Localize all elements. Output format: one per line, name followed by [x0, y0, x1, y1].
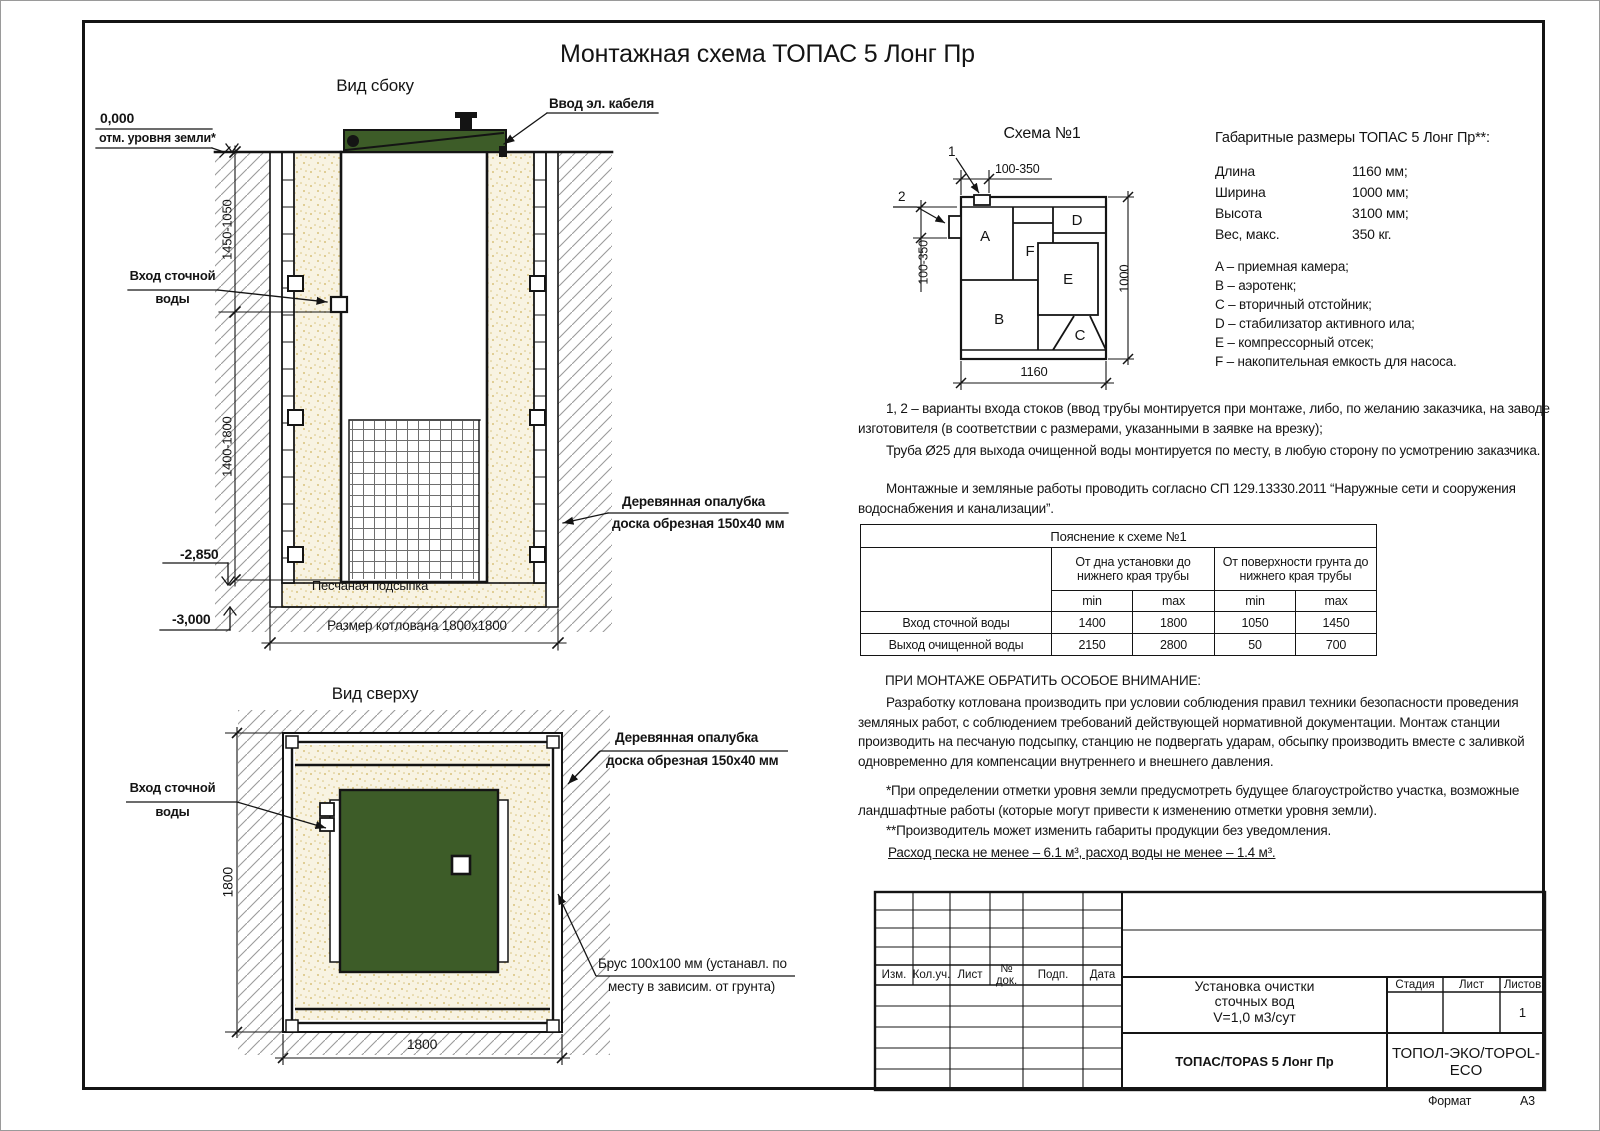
- spec-label-1: Ширина: [1215, 184, 1266, 201]
- inlet-label-top-1: Вход сточной: [125, 780, 220, 795]
- ground-level-label: отм. уровня земли*: [99, 131, 216, 146]
- legend-item-a: A – приемная камера;: [1215, 259, 1349, 275]
- footnote-2: **Производитель может изменить габариты …: [858, 821, 1550, 841]
- row-inlet-v4: 1450: [1296, 612, 1377, 634]
- compartment-d: D: [1067, 212, 1087, 230]
- row-inlet-v1: 1400: [1052, 612, 1133, 634]
- schema-dim-right: 1000: [1116, 239, 1131, 319]
- model-name: ТОПАС/TOPAS 5 Лонг Пр: [1122, 1033, 1387, 1090]
- formwork-label-top-2: доска обрезная 150x40 мм: [606, 753, 778, 769]
- compartment-a: A: [975, 228, 995, 246]
- formwork-label-side-1: Деревянная опалубка: [622, 494, 765, 510]
- legend-item-b: B – аэротенк;: [1215, 278, 1296, 294]
- row-outlet-v2: 2800: [1133, 634, 1215, 656]
- side-view-title: Вид сбоку: [300, 76, 450, 96]
- schema-dim-top: 100-350: [995, 162, 1039, 177]
- inlet-port: [331, 297, 347, 312]
- rev-header-izm: Изм.: [875, 965, 913, 985]
- tank-grid-section: [350, 421, 479, 579]
- attention-title: ПРИ МОНТАЖЕ ОБРАТИТЬ ОСОБОЕ ВНИМАНИЕ:: [885, 673, 1201, 689]
- sand-backfill-left: [295, 153, 341, 583]
- dim-upper-label: 1450-1050: [219, 180, 234, 280]
- rev-header-data: Дата: [1083, 965, 1122, 985]
- schema-dim-bottom: 1160: [998, 364, 1070, 379]
- compartment-b: B: [989, 311, 1009, 329]
- zero-elevation-label: 0,000: [100, 110, 134, 127]
- schema-port-2: [949, 216, 961, 238]
- inlet-port-top: [320, 803, 334, 816]
- sheets-header: Листов: [1500, 977, 1545, 992]
- formwork-label-side-2: доска обрезная 150x40 мм: [612, 516, 784, 532]
- row-outlet-v4: 700: [1296, 634, 1377, 656]
- note-inlet-variants: 1, 2 – варианты входа стоков (ввод трубы…: [858, 399, 1550, 439]
- lid-vent-hole: [347, 135, 359, 147]
- legend-item-e: E – компрессорный отсек;: [1215, 335, 1374, 351]
- footnote-1: *При определении отметки уровня земли пр…: [858, 781, 1550, 820]
- inlet-label-top-2: воды: [125, 804, 220, 819]
- beam-label-1: Брус 100x100 мм (устанавл. по: [598, 956, 787, 972]
- top-dim-left: 1800: [220, 832, 237, 932]
- inlet-label-side-2: воды: [125, 291, 220, 306]
- doc-title-line-2: сточных вод: [1122, 993, 1387, 1009]
- elevation-3000-label: -3,000: [172, 611, 211, 628]
- spec-label-0: Длина: [1215, 163, 1255, 180]
- table-row: Выход очищенной воды 2150 2800 50 700: [861, 634, 1377, 656]
- legend-item-d: D – стабилизатор активного ила;: [1215, 316, 1415, 332]
- row-outlet-v3: 50: [1215, 634, 1296, 656]
- consumption-note: Расход песка не менее – 6.1 м³, расход в…: [888, 845, 1275, 861]
- company-name: ТОПОЛ-ЭКО/TOPOL-ECO: [1387, 1033, 1545, 1090]
- rev-header-koluch: Кол.уч.: [913, 965, 950, 985]
- table-title: Пояснение к схеме №1: [861, 525, 1377, 548]
- top-dim-bottom: 1800: [322, 1036, 522, 1053]
- sheets-count: 1: [1500, 992, 1545, 1033]
- spec-value-2: 3100 мм;: [1352, 205, 1409, 222]
- schema-dim-left: 100-350: [917, 222, 932, 302]
- specs-title: Габаритные размеры ТОПАС 5 Лонг Пр**:: [1215, 130, 1490, 147]
- doc-title-line-3: V=1,0 м3/сут: [1122, 1009, 1387, 1025]
- table-row: Вход сточной воды 1400 1800 1050 1450: [861, 612, 1377, 634]
- table-group-2: От поверхности грунта до нижнего края тр…: [1215, 548, 1377, 591]
- side-view-drawing: [96, 112, 788, 650]
- legend-item-c: C – вторичный отстойник;: [1215, 297, 1372, 313]
- rev-header-dok: № док.: [990, 965, 1023, 985]
- sand-backfill-right: [488, 153, 534, 583]
- table-min-2: min: [1215, 591, 1296, 612]
- spec-label-3: Вес, макс.: [1215, 226, 1280, 243]
- formwork-label-top-1: Деревянная опалубка: [615, 730, 758, 746]
- schema-port-1: [974, 195, 990, 205]
- beam-label-2: месту в зависим. от грунта): [608, 979, 775, 995]
- cable-entry-point: [499, 146, 507, 157]
- row-outlet-v1: 2150: [1052, 634, 1133, 656]
- legend-item-f: F – накопительная емкость для насоса.: [1215, 354, 1457, 370]
- stage-header: Стадия: [1387, 977, 1443, 992]
- inlet-label-side-1: Вход сточной: [125, 268, 220, 283]
- sand-bedding-label: Песчаная подсыпка: [290, 578, 450, 593]
- rev-header-list: Лист: [950, 965, 990, 985]
- row-outlet-label: Выход очищенной воды: [861, 634, 1052, 656]
- spec-value-0: 1160 мм;: [1352, 163, 1408, 180]
- rev-header-podp: Подп.: [1023, 965, 1083, 985]
- elevation-2850-label: -2,850: [180, 546, 219, 563]
- top-view-title: Вид сверху: [300, 684, 450, 704]
- schema-title: Схема №1: [967, 125, 1117, 144]
- tank-top: [340, 790, 498, 972]
- drawing-sheet: Монтажная схема ТОПАС 5 Лонг Пр Вид сбок…: [0, 0, 1600, 1131]
- row-inlet-v3: 1050: [1215, 612, 1296, 634]
- dim-lower-label: 1400-1800: [219, 397, 234, 497]
- compartment-f: F: [1020, 243, 1040, 261]
- formwork-board-left: [282, 152, 294, 583]
- table-blank-cell: [861, 548, 1052, 612]
- spec-label-2: Высота: [1215, 205, 1262, 222]
- tank-hatch-opening: [452, 856, 470, 874]
- pit-size-label: Размер котлована 1800x1800: [302, 618, 532, 634]
- row-inlet-label: Вход сточной воды: [861, 612, 1052, 634]
- compartment-e: E: [1058, 271, 1078, 289]
- spec-value-1: 1000 мм;: [1352, 184, 1409, 201]
- format-label: Формат: [1428, 1094, 1471, 1109]
- table-max-2: max: [1296, 591, 1377, 612]
- tank-lid: [344, 112, 507, 157]
- row-inlet-v2: 1800: [1133, 612, 1215, 634]
- note-outlet-pipe: Труба Ø25 для выхода очищенной воды монт…: [858, 441, 1550, 461]
- lid-vent-cap: [460, 117, 472, 130]
- attention-body: Разработку котлована производить при усл…: [858, 693, 1552, 771]
- schema-callout-1: 1: [948, 144, 955, 160]
- table-min-1: min: [1052, 591, 1133, 612]
- page-title: Монтажная схема ТОПАС 5 Лонг Пр: [560, 40, 1080, 70]
- table-max-1: max: [1133, 591, 1215, 612]
- formwork-board-right: [534, 152, 546, 583]
- explanation-table: Пояснение к схеме №1 От дна установки до…: [860, 524, 1377, 656]
- compartment-c: C: [1070, 327, 1090, 345]
- sheet-header: Лист: [1443, 977, 1500, 992]
- schema-callout-2: 2: [898, 189, 905, 205]
- note-sp-standard: Монтажные и земляные работы проводить со…: [858, 479, 1550, 519]
- format-value: А3: [1520, 1094, 1535, 1109]
- table-group-1: От дна установки до нижнего края трубы: [1052, 548, 1215, 591]
- spec-value-3: 350 кг.: [1352, 226, 1391, 243]
- cable-entry-label: Ввод эл. кабеля: [549, 96, 654, 112]
